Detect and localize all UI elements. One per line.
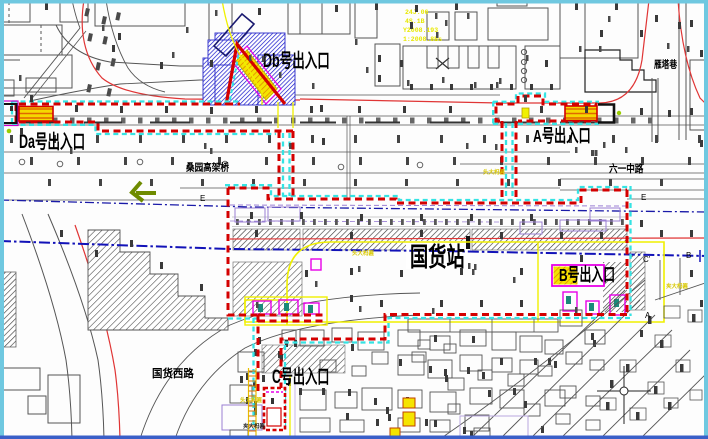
svg-text:夹大杩匾: 夹大杩匾: [666, 282, 689, 290]
svg-text:雁塔巷: 雁塔巷: [654, 58, 677, 70]
svg-text:C号出入口: C号出入口: [272, 365, 329, 388]
svg-text:六一中路: 六一中路: [609, 162, 644, 175]
svg-text:B号出入口: B号出入口: [559, 264, 615, 285]
svg-text:Da号出入口: Da号出入口: [19, 130, 85, 152]
svg-text:Db号出入口: Db号出入口: [263, 49, 330, 71]
svg-text:头大杩匾: 头大杩匾: [483, 168, 506, 176]
svg-text:E: E: [641, 193, 646, 202]
svg-text:E: E: [200, 194, 205, 203]
svg-text:桑园高架桥: 桑园高架桥: [185, 161, 229, 173]
svg-text:4S.1B: 4S.1B: [405, 18, 425, 25]
svg-text:A: A: [645, 311, 651, 320]
svg-text:国货站: 国货站: [410, 242, 465, 272]
svg-text:头大杩匾: 头大杩匾: [240, 396, 263, 404]
svg-text:B: B: [686, 251, 691, 260]
svg-text:A号出入口: A号出入口: [533, 124, 591, 146]
svg-text:夹大杩匾: 夹大杩匾: [243, 422, 266, 430]
svg-text:国货西路: 国货西路: [152, 367, 194, 380]
svg-text:头大杩匾: 头大杩匾: [352, 249, 375, 257]
svg-text:Y2008.193: Y2008.193: [403, 27, 438, 34]
svg-text:C': C': [643, 255, 651, 264]
